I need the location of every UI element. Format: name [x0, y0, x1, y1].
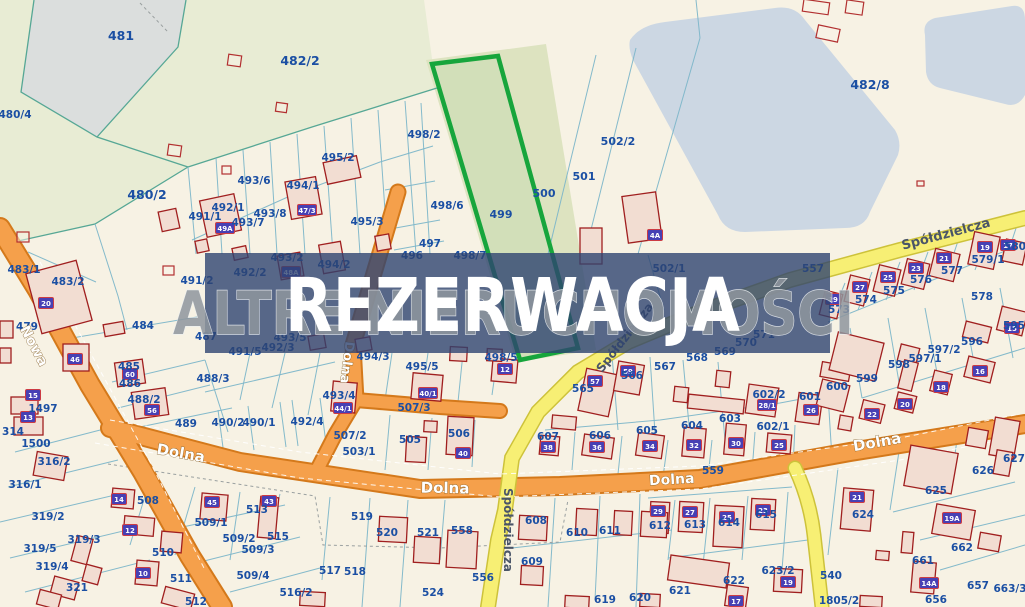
parcel-number-label: 499	[490, 208, 513, 221]
house-number-text: 45	[207, 499, 217, 507]
house-number-text: 25	[774, 442, 784, 450]
parcel-number-label: 614	[718, 517, 740, 529]
building	[901, 532, 914, 554]
parcel-number-label: 598	[888, 359, 910, 371]
house-number-text: 19	[980, 244, 990, 252]
house-number-text: 22	[867, 411, 877, 419]
street-name-label: Spółdzielcza	[501, 488, 515, 572]
parcel-number-label: 484	[132, 320, 154, 332]
parcel-number-label: 540	[820, 570, 842, 582]
parcel-number-label: 319/2	[31, 511, 64, 523]
parcel-number-label: 509/4	[236, 570, 269, 582]
parcel-number-label: 495/3	[350, 216, 383, 228]
house-number-text: 56	[147, 407, 157, 415]
parcel-number-label: 567	[654, 361, 676, 373]
shed-outline	[167, 144, 181, 157]
parcel-number-label: 507/3	[397, 402, 430, 414]
house-number-text: 19	[783, 579, 793, 587]
parcel-number-label: 316/1	[8, 479, 41, 491]
house-number-text: 36	[592, 444, 602, 452]
house-number-text: 12	[125, 527, 135, 535]
parcel-number-label: 494/1	[286, 180, 319, 192]
shed-outline	[845, 0, 864, 15]
parcel-number-label: 600	[826, 381, 848, 393]
parcel-number-label: 566	[621, 370, 643, 382]
house-number-text: 17	[731, 598, 741, 606]
parcel-number-label: 574	[855, 294, 877, 306]
building	[424, 421, 438, 433]
parcel-number-label: 622	[723, 575, 745, 587]
building	[966, 427, 989, 448]
street-name-label: Dolna	[649, 471, 695, 489]
house-number-text: 21	[852, 494, 862, 502]
parcel-number-label: 492/1	[211, 202, 244, 214]
parcel-number-label: 580	[1004, 241, 1025, 253]
parcel-number-label: 663/3	[993, 583, 1025, 595]
house-number-text: 46	[70, 356, 80, 364]
house-number-text: 21	[939, 255, 949, 263]
parcel-number-label: 605	[636, 425, 658, 437]
parcel-number-label: 520	[376, 527, 398, 539]
parcel-number-label: 524	[422, 587, 444, 599]
parcel-number-label: 607	[537, 431, 559, 443]
parcel-number-label: 602/2	[752, 389, 785, 401]
parcel-number-label: 613	[684, 519, 706, 531]
house-number-text: 34	[645, 443, 655, 451]
parcel-number-label: 493/7	[231, 217, 264, 229]
house-number-text: 14A	[921, 580, 937, 588]
parcel-number-label: 1500	[21, 438, 50, 450]
parcel-number-label: 576	[910, 274, 932, 286]
parcel-number-label: 480/4	[0, 109, 32, 121]
parcel-number-label: 486	[119, 378, 141, 390]
house-number-text: 40	[458, 450, 468, 458]
parcel-number-label: 568	[686, 352, 708, 364]
parcel-number-label: 625	[925, 485, 947, 497]
parcel-number-label: 623/2	[761, 565, 794, 577]
house-number-text: 19A	[944, 515, 960, 523]
parcel-number-label: 509/1	[194, 517, 227, 529]
house-number-text: 15	[28, 392, 38, 400]
building	[195, 239, 209, 253]
parcel-number-label: 619	[594, 594, 616, 606]
parcel-number-label: 558	[451, 525, 473, 537]
building	[413, 536, 440, 563]
parcel-number-label: 501	[573, 170, 596, 183]
parcel-number-label: 498/5	[484, 352, 517, 364]
parcel-number-label: 609	[521, 556, 543, 568]
parcel-number-label: 490/2	[211, 417, 244, 429]
house-number-text: 28/1	[758, 402, 775, 410]
parcel-number-label: 511	[170, 573, 192, 585]
house-number-text: 20	[41, 300, 51, 308]
parcel-number-label: 505	[399, 434, 421, 446]
house-number-text: 27	[855, 284, 865, 292]
shed-outline	[227, 54, 241, 67]
parcel-number-label: 497	[419, 238, 441, 250]
house-number-text: 4A	[650, 232, 661, 240]
building	[838, 415, 853, 431]
parcel-number-label: 319/4	[35, 561, 68, 573]
parcel-number-label: 508	[137, 495, 159, 507]
house-number-text: 13	[23, 414, 33, 422]
house-number-text: 14	[114, 496, 124, 504]
parcel-number-label: 565	[572, 383, 594, 395]
parcel-number-label: 483/2	[51, 276, 84, 288]
parcel-number-label: 521	[417, 527, 439, 539]
parcel-number-label: 519	[351, 511, 373, 523]
parcel-number-label: 1805/2	[819, 595, 859, 607]
map-canvas: 20466056151349A47/348A44/140/1124A141210…	[0, 0, 1025, 607]
parcel-number-label: 602/1	[756, 421, 789, 433]
parcel-number-label: 488/2	[127, 394, 160, 406]
parcel-number-label: 559	[702, 465, 724, 477]
parcel-number-label: 603	[719, 413, 741, 425]
parcel-number-label: 577	[941, 265, 963, 277]
parcel-number-label: 615	[755, 509, 777, 521]
parcel-number-label: 578	[971, 291, 993, 303]
parcel-number-label: 509/3	[241, 544, 274, 556]
shed-outline	[222, 166, 231, 174]
parcel-number-label: 507/2	[333, 430, 366, 442]
building	[673, 386, 688, 402]
house-number-text: 38	[543, 444, 553, 452]
parcel-number-label: 610	[566, 527, 588, 539]
parcel-number-label: 575	[883, 285, 905, 297]
parcel-number-label: 488/3	[196, 373, 229, 385]
shed-outline	[17, 232, 29, 242]
parcel-number-label: 481	[108, 28, 134, 43]
house-number-text: 44/1	[334, 405, 351, 413]
parcel-number-label: 482/8	[850, 77, 889, 92]
house-number-text: 25	[883, 274, 893, 282]
parcel-number-label: 502/2	[601, 135, 636, 148]
parcel-number-label: 595	[1003, 320, 1025, 332]
house-number-text: 30	[731, 440, 741, 448]
shed-outline	[917, 181, 924, 186]
parcel-number-label: 500	[533, 187, 556, 200]
shed-outline	[275, 102, 287, 112]
house-number-text: 12	[500, 366, 510, 374]
building	[0, 321, 13, 338]
parcel-number-label: 599	[856, 373, 878, 385]
house-number-text: 18	[936, 384, 946, 392]
parcel-number-label: 495/5	[405, 361, 438, 373]
parcel-number-label: 319/5	[23, 543, 56, 555]
house-number-text: 23	[911, 265, 921, 273]
parcel-number-label: 597/1	[908, 353, 941, 365]
building	[978, 532, 1001, 551]
parcel-number-label: 503/1	[342, 446, 375, 458]
parcel-number-label: 510	[152, 547, 174, 559]
parcel-number-label: 516/2	[279, 587, 312, 599]
parcel-number-label: 314	[2, 426, 24, 438]
parcel-number-label: 596	[961, 336, 983, 348]
parcel-number-label: 498/6	[430, 200, 463, 212]
building	[0, 348, 11, 363]
parcel-number-label: 606	[589, 430, 611, 442]
parcel-number-label: 316/2	[37, 456, 70, 468]
parcel-number-label: 611	[599, 525, 621, 537]
parcel-number-label: 627	[1003, 453, 1025, 465]
house-number-text: 32	[689, 442, 699, 450]
parcel-number-label: 493/4	[322, 390, 355, 402]
building	[876, 550, 890, 560]
parcel-number-label: 485	[118, 361, 140, 373]
building	[375, 234, 391, 251]
parcel-number-label: 662	[951, 542, 973, 554]
house-number-text: 47/3	[298, 207, 315, 215]
parcel-number-label: 489	[175, 418, 197, 430]
parcel-number-label: 624	[852, 509, 874, 521]
house-number-text: 10	[138, 570, 148, 578]
parcel-number-label: 490/1	[242, 417, 275, 429]
parcel-number-label: 657	[967, 580, 989, 592]
building	[551, 415, 576, 430]
parcel-number-label: 517	[319, 565, 341, 577]
parcel-number-label: 1497	[28, 403, 57, 415]
parcel-number-label: 482/2	[280, 53, 319, 68]
parcel-number-label: 604	[681, 420, 703, 432]
parcel-number-label: 626	[972, 465, 994, 477]
parcel-number-label: 493/6	[237, 175, 270, 187]
parcel-number-label: 495/2	[321, 152, 354, 164]
parcel-number-label: 621	[669, 585, 691, 597]
parcel-number-label: 321	[66, 582, 88, 594]
house-number-text: 40/1	[419, 390, 436, 398]
building	[860, 595, 883, 607]
building	[715, 370, 731, 387]
parcel-number-label: 515	[267, 531, 289, 543]
house-number-text: 16	[975, 368, 985, 376]
cadastral-map-screenshot: 20466056151349A47/348A44/140/1124A141210…	[0, 0, 1025, 607]
building	[158, 208, 180, 231]
parcel-number-label: 480/2	[127, 187, 166, 202]
house-number-text: 29	[653, 508, 663, 516]
parcel-number-label: 319/3	[67, 534, 100, 546]
parcel-number-label: 498/2	[407, 129, 440, 141]
house-number-text: 27	[685, 509, 695, 517]
building	[103, 321, 125, 336]
house-number-text: 20	[900, 401, 910, 409]
parcel-number-label: 656	[925, 594, 947, 606]
parcel-number-label: 601	[799, 391, 821, 403]
reservation-label: REZERWACJA	[285, 263, 740, 349]
parcel-number-label: 556	[472, 572, 494, 584]
parcel-number-label: 506	[448, 428, 470, 440]
parcel-number-label: 483/1	[7, 264, 40, 276]
building	[521, 565, 544, 585]
parcel-number-label: 512	[185, 596, 207, 607]
parcel-number-label: 518	[344, 566, 366, 578]
street-name-label: Dolna	[421, 479, 470, 498]
parcel-number-label: 492/4	[290, 416, 323, 428]
building	[565, 595, 590, 607]
shed-outline	[163, 266, 174, 275]
parcel-number-label: 513	[246, 504, 268, 516]
parcel-number-label: 579/1	[971, 254, 1004, 266]
parcel-number-label: 661	[912, 555, 934, 567]
parcel-number-label: 608	[525, 515, 547, 527]
parcel-number-label: 612	[649, 520, 671, 532]
house-number-text: 26	[806, 407, 816, 415]
parcel-number-label: 620	[629, 592, 651, 604]
